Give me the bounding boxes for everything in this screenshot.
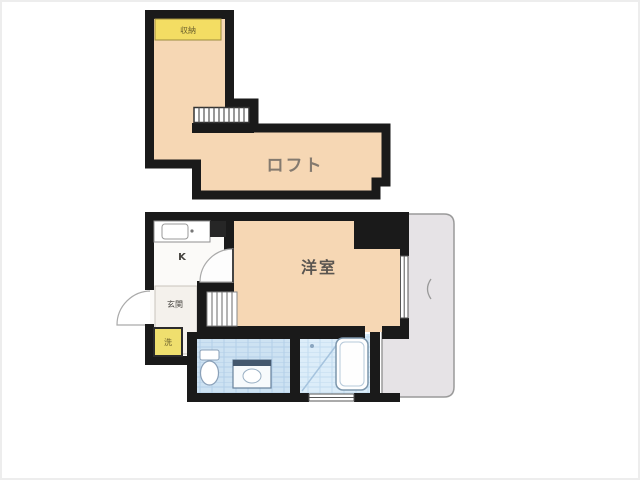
stove-icon (210, 221, 226, 237)
entrance-door-arc-icon (117, 291, 151, 325)
balcony-window-icon (401, 256, 409, 318)
floorplan-drawing: 収納 ロフト (2, 2, 640, 482)
entrance-label: 玄関 (167, 299, 183, 309)
loft-storage-label: 収納 (180, 25, 196, 35)
main-floor-section: 洗 洋室 K 玄関 (117, 212, 454, 402)
loft-wall-segment (192, 123, 254, 133)
kitchen-sink-icon (162, 224, 188, 239)
floorplan: 収納 ロフト (0, 0, 640, 480)
loft-section: 収納 ロフト (150, 15, 387, 196)
loft-ladder-icon (194, 108, 249, 123)
washbasin-icon (233, 360, 271, 388)
western-room-label: 洋室 (301, 258, 337, 277)
stairs-icon (207, 292, 237, 326)
kitchen-counter (154, 221, 210, 242)
shower-icon (310, 344, 314, 348)
bathtub-icon (336, 338, 368, 390)
bath-window-icon (309, 394, 354, 401)
loft-label: ロフト (267, 156, 324, 176)
toilet-icon (200, 350, 219, 385)
washer-label: 洗 (164, 337, 172, 347)
kitchen-label: K (178, 252, 187, 263)
